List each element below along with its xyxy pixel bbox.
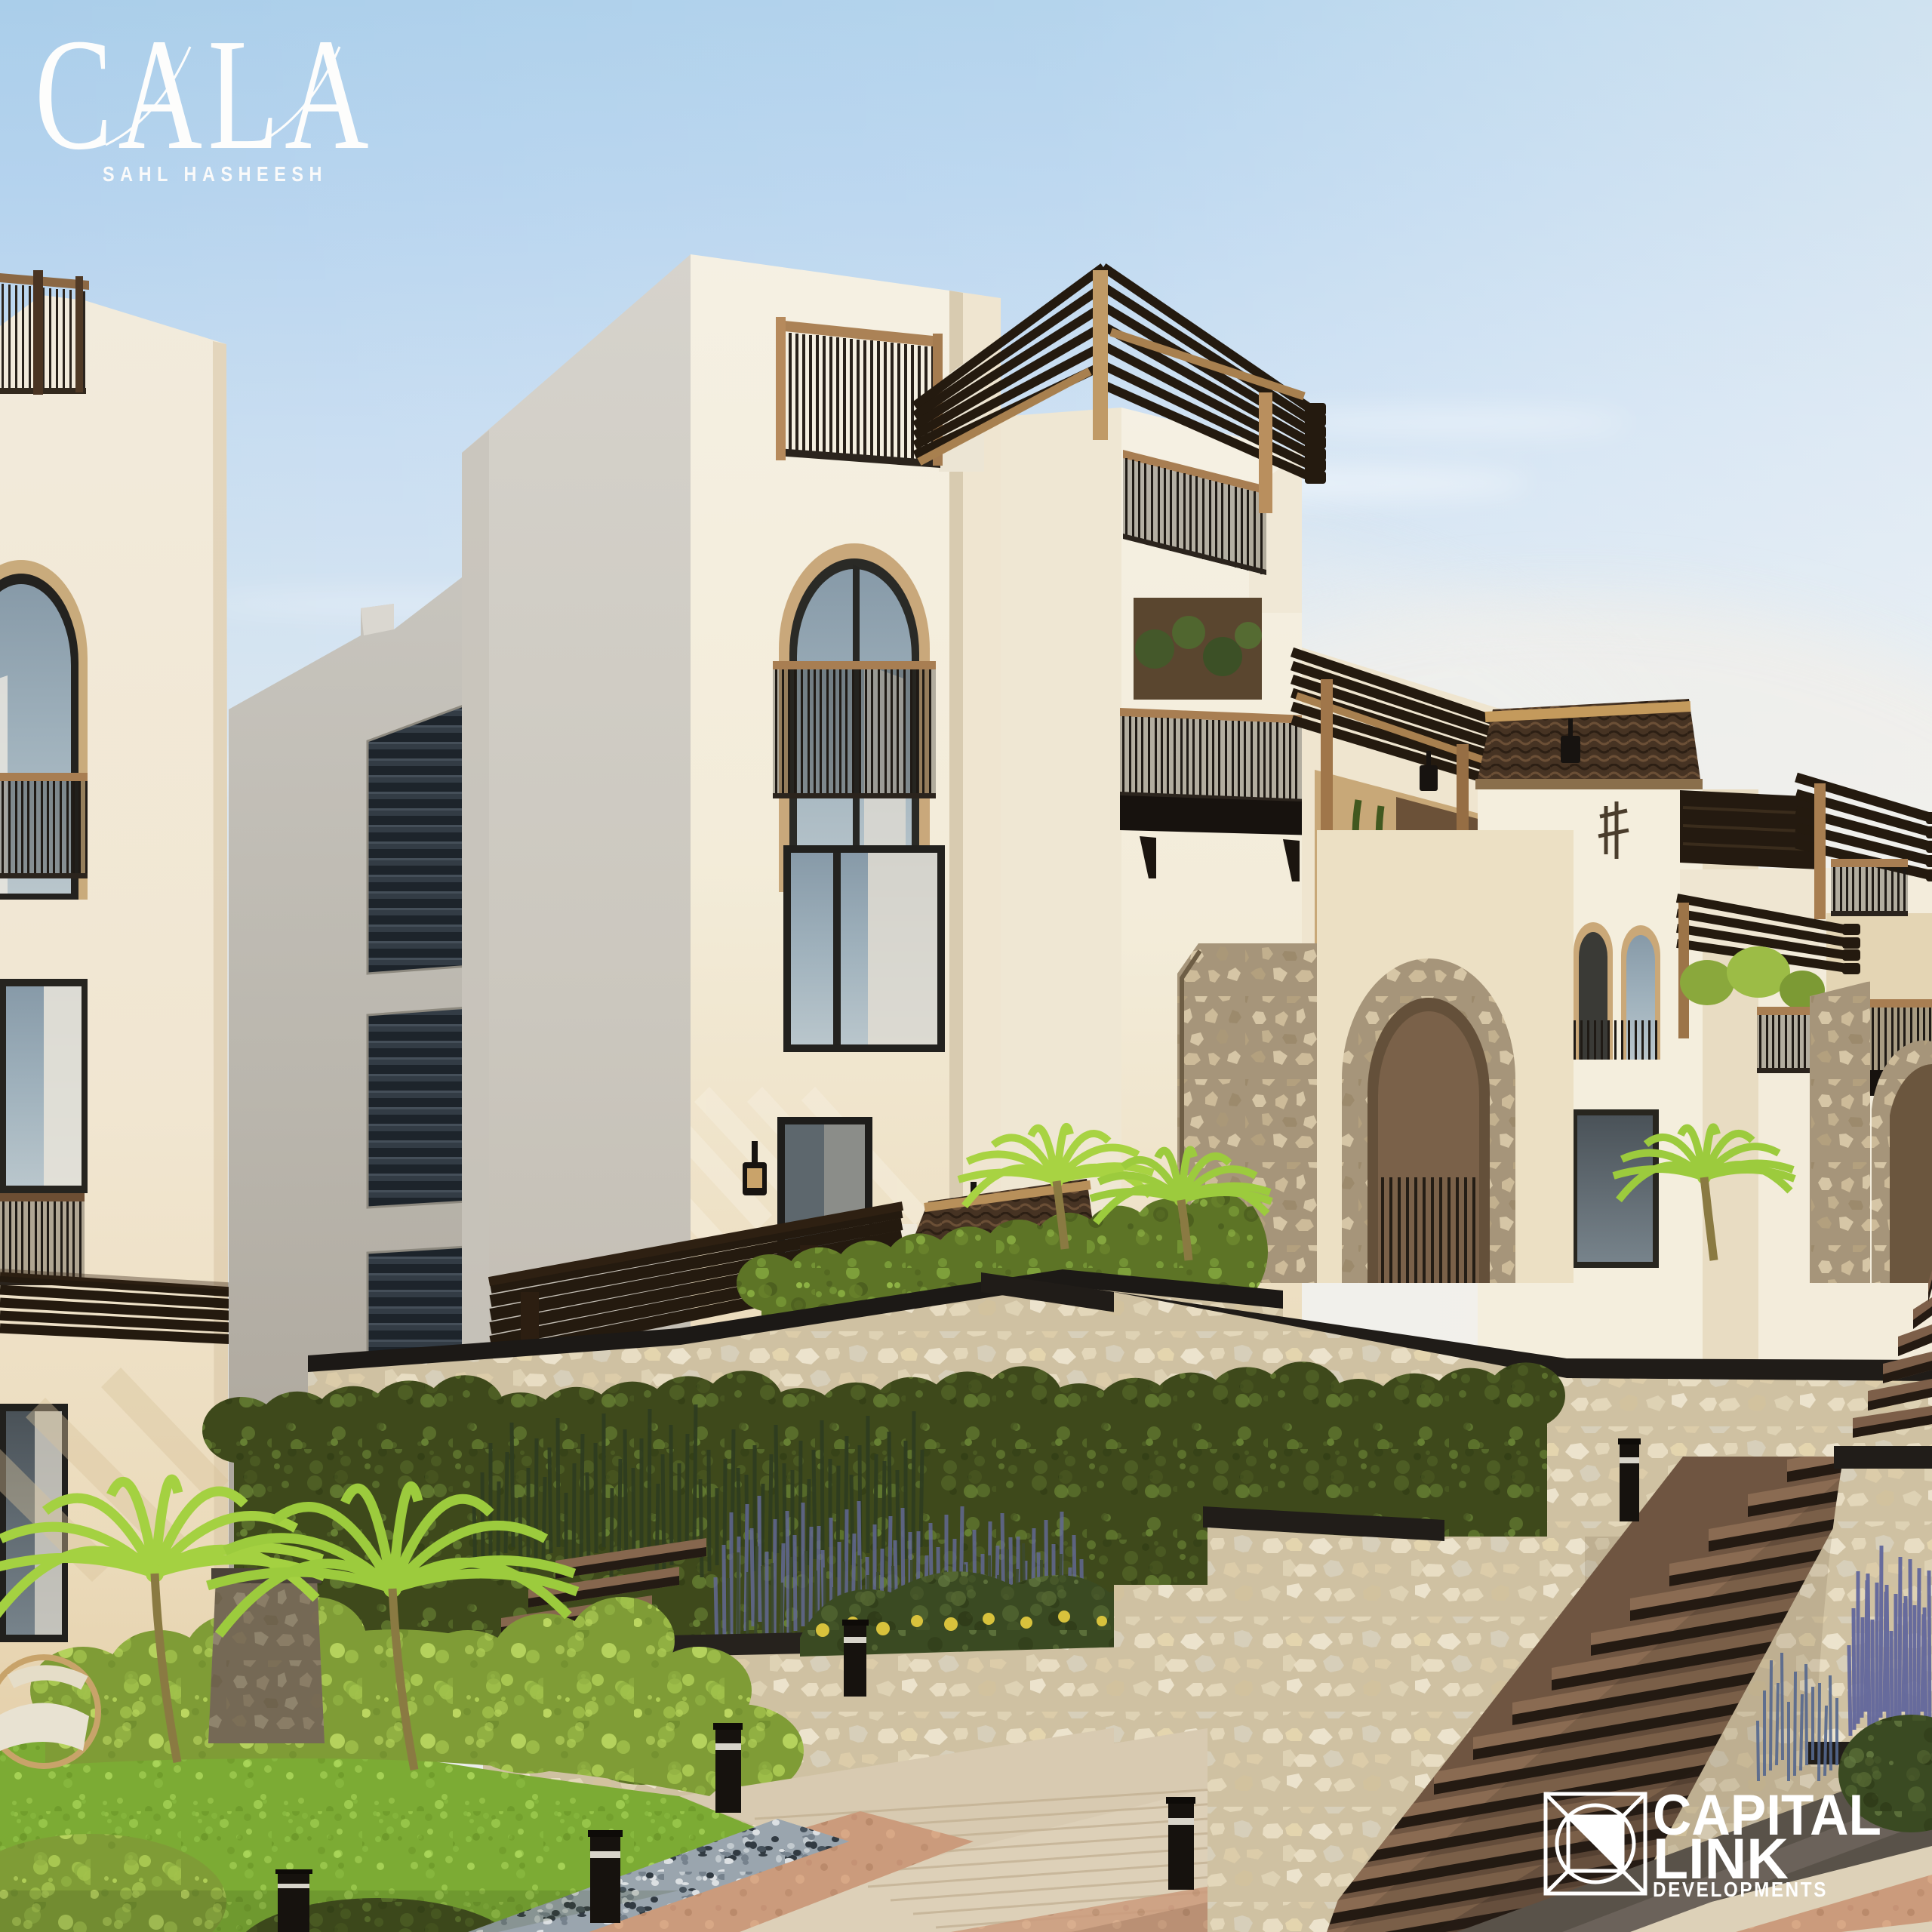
svg-text:SAHL HASHEESH: SAHL HASHEESH [103,162,328,186]
svg-text:DEVELOPMENTS: DEVELOPMENTS [1653,1878,1828,1901]
svg-text:CALA: CALA [35,5,374,183]
